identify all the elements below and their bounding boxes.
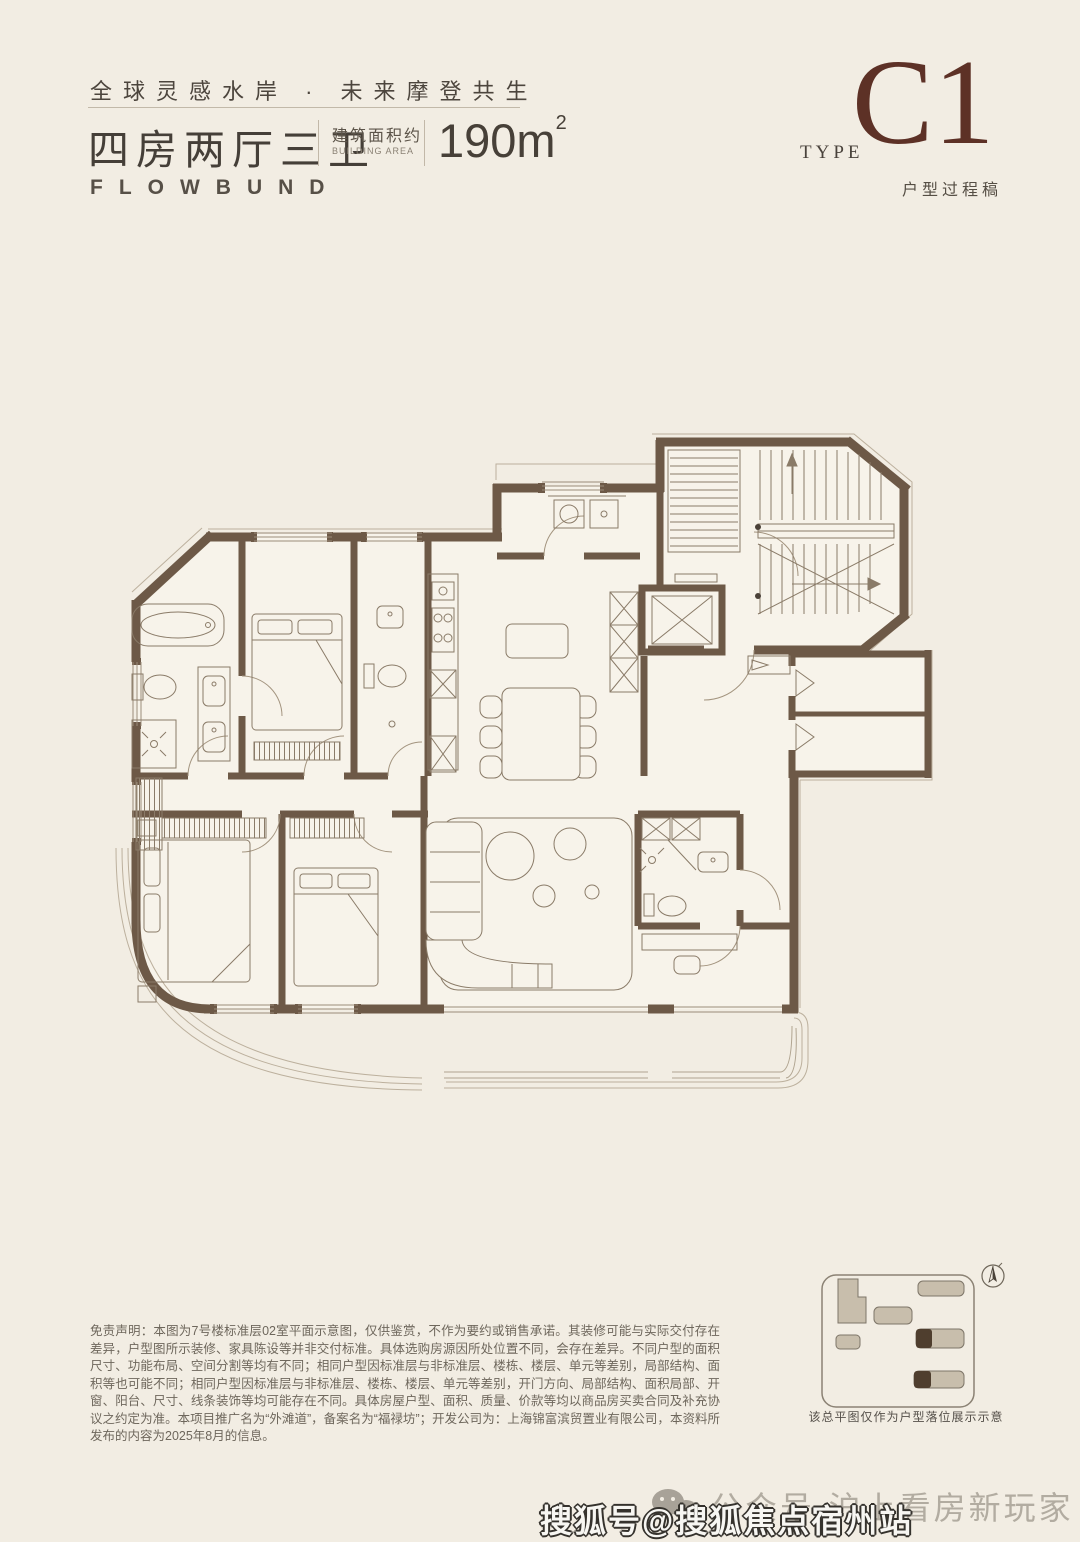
area-number: 190m bbox=[438, 114, 556, 167]
wardrobe bbox=[290, 818, 364, 838]
tagline: 全球灵感水岸 · 未来摩登共生 bbox=[90, 74, 539, 106]
header-divider-2 bbox=[424, 120, 425, 166]
dining-table bbox=[502, 688, 580, 780]
site-plan-caption: 该总平图仅作为户型落位展示示意 bbox=[806, 1408, 1006, 1425]
compass-icon bbox=[982, 1263, 1004, 1287]
type-code: C1 bbox=[852, 36, 994, 170]
sohu-watermark: 搜狐号@搜狐焦点宿州站 bbox=[540, 1496, 913, 1542]
site-buildings bbox=[836, 1279, 964, 1388]
wardrobe bbox=[162, 818, 266, 838]
dining-set bbox=[480, 688, 596, 780]
highlighted-units bbox=[914, 1329, 932, 1388]
closet bbox=[136, 778, 162, 850]
disclaimer-text: 免责声明：本图为7号楼标准层02室平面示意图，仅供鉴赏，不作为要约或销售承诺。其… bbox=[90, 1323, 720, 1446]
header-divider-1 bbox=[318, 120, 319, 166]
wardrobe bbox=[254, 742, 340, 760]
floor-plan bbox=[92, 424, 992, 1114]
balcony bbox=[444, 1026, 796, 1078]
area-label-en: BUILDING AREA bbox=[332, 146, 414, 156]
site-plan bbox=[812, 1255, 1012, 1425]
type-note: 户型过程稿 bbox=[902, 176, 1002, 200]
area-superscript: 2 bbox=[556, 112, 567, 134]
area-value: 190m2 bbox=[438, 112, 567, 168]
tagline-divider bbox=[88, 107, 520, 108]
brand-name: FLOWBUND bbox=[90, 176, 340, 200]
area-label-cn: 建筑面积约 bbox=[332, 122, 422, 146]
